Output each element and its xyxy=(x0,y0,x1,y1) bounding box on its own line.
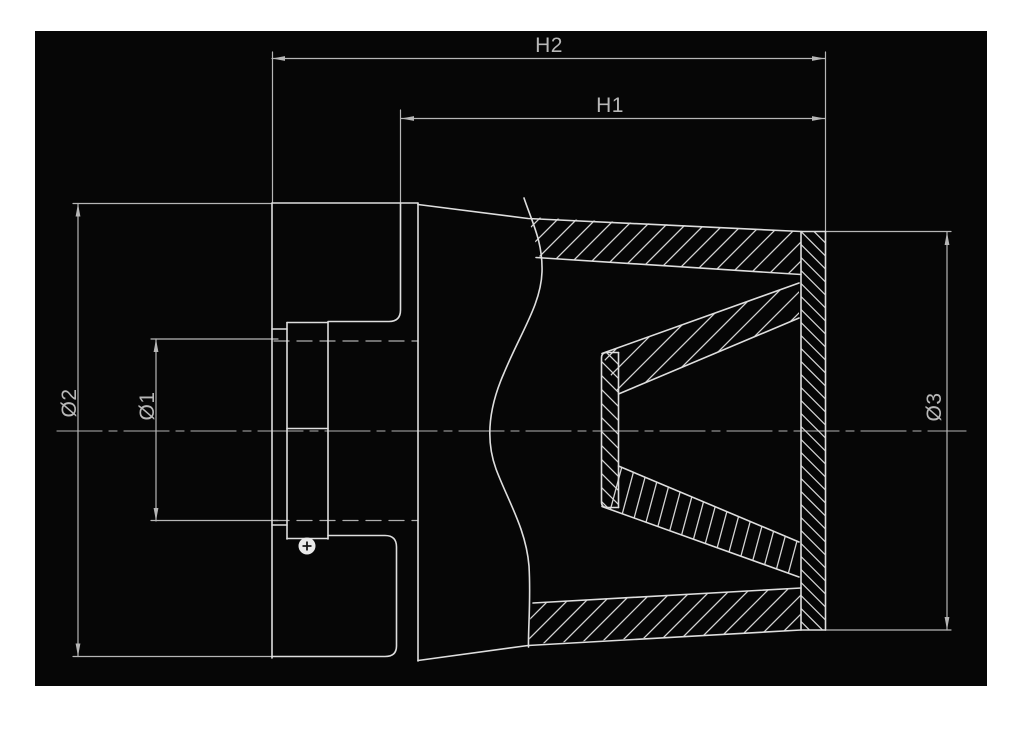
dim-label-h2: H2 xyxy=(535,34,563,57)
dim-label-h1: H1 xyxy=(596,94,624,117)
technical-drawing: H2 H1 Ø2 Ø1 Ø3 xyxy=(0,0,1024,736)
dim-label-d1: Ø1 xyxy=(136,391,159,420)
dim-label-d2: Ø2 xyxy=(58,388,81,417)
drawing-page: H2 H1 Ø2 Ø1 Ø3 xyxy=(0,0,1024,736)
dim-label-d3: Ø3 xyxy=(923,392,946,421)
